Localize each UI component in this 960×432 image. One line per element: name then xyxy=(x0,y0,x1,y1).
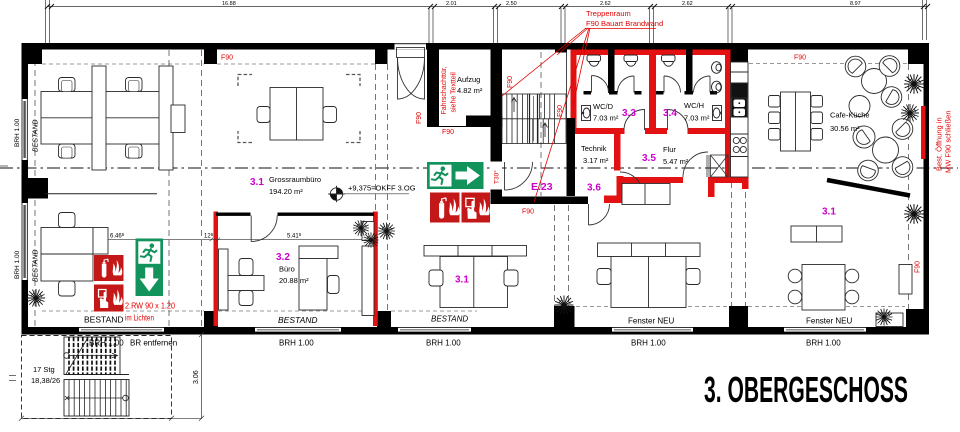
svg-text:7.03 m²: 7.03 m² xyxy=(593,114,619,123)
svg-text:4.82 m²: 4.82 m² xyxy=(457,86,483,95)
svg-text:WC/H: WC/H xyxy=(684,101,704,110)
svg-text:F90 Bauart Brandwand: F90 Bauart Brandwand xyxy=(586,19,663,28)
svg-text:BRH 1.00: BRH 1.00 xyxy=(279,339,314,348)
svg-text:F90: F90 xyxy=(522,209,534,216)
svg-text:MW F90 schließen: MW F90 schließen xyxy=(944,110,953,173)
svg-text:F90: F90 xyxy=(557,105,564,117)
svg-text:Cafe-Küche: Cafe-Küche xyxy=(830,111,870,120)
svg-text:siehe Textteil: siehe Textteil xyxy=(451,72,458,113)
svg-text:5.47 m²: 5.47 m² xyxy=(663,157,689,166)
svg-text:BR entfernen: BR entfernen xyxy=(130,339,177,348)
svg-text:3.2: 3.2 xyxy=(276,252,290,263)
svg-text:3.06: 3.06 xyxy=(193,370,200,384)
svg-text:3.3: 3.3 xyxy=(622,108,636,119)
svg-text:T30°: T30° xyxy=(493,170,501,184)
svg-text:3.5: 3.5 xyxy=(642,153,656,164)
svg-text:3.17 m²: 3.17 m² xyxy=(583,156,609,165)
svg-text:+9,375=OKFF 3.OG: +9,375=OKFF 3.OG xyxy=(348,184,416,193)
svg-text:Fenster NEU: Fenster NEU xyxy=(806,317,852,326)
svg-text:3.4: 3.4 xyxy=(663,108,677,119)
svg-text:2.62: 2.62 xyxy=(600,1,611,7)
svg-text:BESTAND: BESTAND xyxy=(278,315,318,325)
svg-text:20.88 m²: 20.88 m² xyxy=(279,276,309,285)
svg-text:Flur: Flur xyxy=(663,145,676,154)
svg-text:WC/D: WC/D xyxy=(593,102,614,111)
svg-text:F90: F90 xyxy=(221,55,233,62)
svg-text:3. OBERGESCHOSS: 3. OBERGESCHOSS xyxy=(704,369,908,410)
svg-text:F90: F90 xyxy=(507,76,514,88)
svg-text:Grossraumbüro: Grossraumbüro xyxy=(269,175,321,184)
svg-text:30.56 m²: 30.56 m² xyxy=(830,124,860,133)
svg-text:Büro: Büro xyxy=(279,265,295,274)
svg-text:BRH 1.00: BRH 1.00 xyxy=(806,339,841,348)
svg-text:BESTAND: BESTAND xyxy=(33,119,40,152)
svg-text:3.1: 3.1 xyxy=(250,177,264,188)
svg-text:2.62: 2.62 xyxy=(682,1,693,7)
svg-text:Aufzug: Aufzug xyxy=(457,75,480,84)
svg-text:BRH 1.00: BRH 1.00 xyxy=(426,339,461,348)
svg-text:BESTAND: BESTAND xyxy=(431,315,468,324)
svg-text:2.01: 2.01 xyxy=(446,1,457,7)
svg-text:3.6: 3.6 xyxy=(587,183,601,194)
svg-text:BESTAND: BESTAND xyxy=(33,249,40,282)
svg-text:Technik: Technik xyxy=(581,144,607,153)
svg-text:Fahrschachttür,: Fahrschachttür, xyxy=(441,66,448,114)
svg-text:Treppenraum: Treppenraum xyxy=(586,9,631,18)
svg-text:8.97: 8.97 xyxy=(850,1,861,7)
svg-text:BRH 1.00: BRH 1.00 xyxy=(14,250,21,279)
svg-text:7.03 m²: 7.03 m² xyxy=(684,114,710,123)
svg-text:194.20 m²: 194.20 m² xyxy=(269,187,303,196)
svg-text:F90: F90 xyxy=(442,129,454,136)
svg-text:BRH 1.00: BRH 1.00 xyxy=(14,118,21,147)
svg-text:F90: F90 xyxy=(416,112,423,124)
svg-text:17 Stg: 17 Stg xyxy=(33,365,55,374)
svg-text:2.RW 90 x 1.20: 2.RW 90 x 1.20 xyxy=(125,302,175,311)
svg-text:18,38/26: 18,38/26 xyxy=(31,376,60,385)
svg-text:3.1: 3.1 xyxy=(455,275,469,286)
svg-text:BESTAND: BESTAND xyxy=(84,315,124,325)
svg-text:BRH 1.00: BRH 1.00 xyxy=(89,339,124,348)
svg-text:16.88: 16.88 xyxy=(222,1,236,7)
svg-text:3.1: 3.1 xyxy=(822,207,836,218)
svg-text:Fenster NEU: Fenster NEU xyxy=(628,317,674,326)
svg-text:2.50: 2.50 xyxy=(506,1,517,7)
svg-text:F90: F90 xyxy=(794,55,806,62)
svg-text:BRH 1.00: BRH 1.00 xyxy=(631,339,666,348)
svg-text:im Lichten: im Lichten xyxy=(125,314,154,323)
svg-text:F90: F90 xyxy=(915,261,922,273)
svg-text:E.23: E.23 xyxy=(531,181,553,193)
svg-text:Best. Öffnung in: Best. Öffnung in xyxy=(935,117,944,171)
